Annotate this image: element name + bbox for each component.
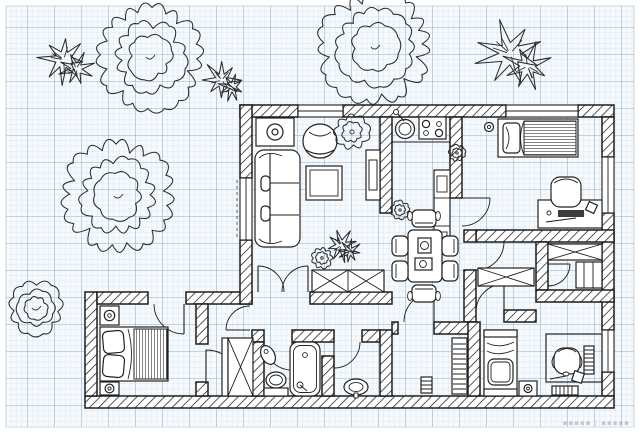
stool-speaker (519, 381, 537, 396)
nightstand-lamp-bottom (100, 382, 119, 395)
single-bed-bottom-right (484, 330, 517, 396)
watermark: ▪▪▪▪▪ / ▪▪▪▪▪ (563, 419, 630, 427)
window-top-living (298, 105, 343, 117)
cooktop (419, 117, 446, 139)
toilet (264, 372, 288, 396)
book-rack (552, 386, 578, 395)
radiator (452, 338, 467, 394)
floor-mat (421, 377, 432, 393)
ceiling-lamp (485, 123, 494, 132)
bathtub (290, 342, 320, 396)
window-top-bedroom (506, 105, 578, 117)
sofa (255, 150, 300, 247)
single-bed-top-right (498, 119, 578, 157)
walkin-wardrobe (222, 338, 253, 396)
side-table-with-lamp (256, 118, 294, 146)
tv-cabinet (366, 150, 380, 200)
window-right-bedroom (602, 157, 614, 213)
floor-plan-canvas (0, 0, 640, 433)
floor-plan-screenshot: ▪▪▪▪▪ / ▪▪▪▪▪ (0, 0, 640, 433)
wardrobe-left-closet (478, 268, 534, 286)
shoe-cabinet (312, 270, 384, 292)
shelf-cabinet-right-closet (576, 262, 602, 288)
double-bed (100, 327, 168, 381)
wardrobe-right-closet (548, 244, 602, 260)
coffee-table (306, 166, 342, 200)
nightstand-lamp-top (100, 306, 119, 325)
armchair (303, 124, 337, 158)
window-right-lower (602, 330, 614, 372)
